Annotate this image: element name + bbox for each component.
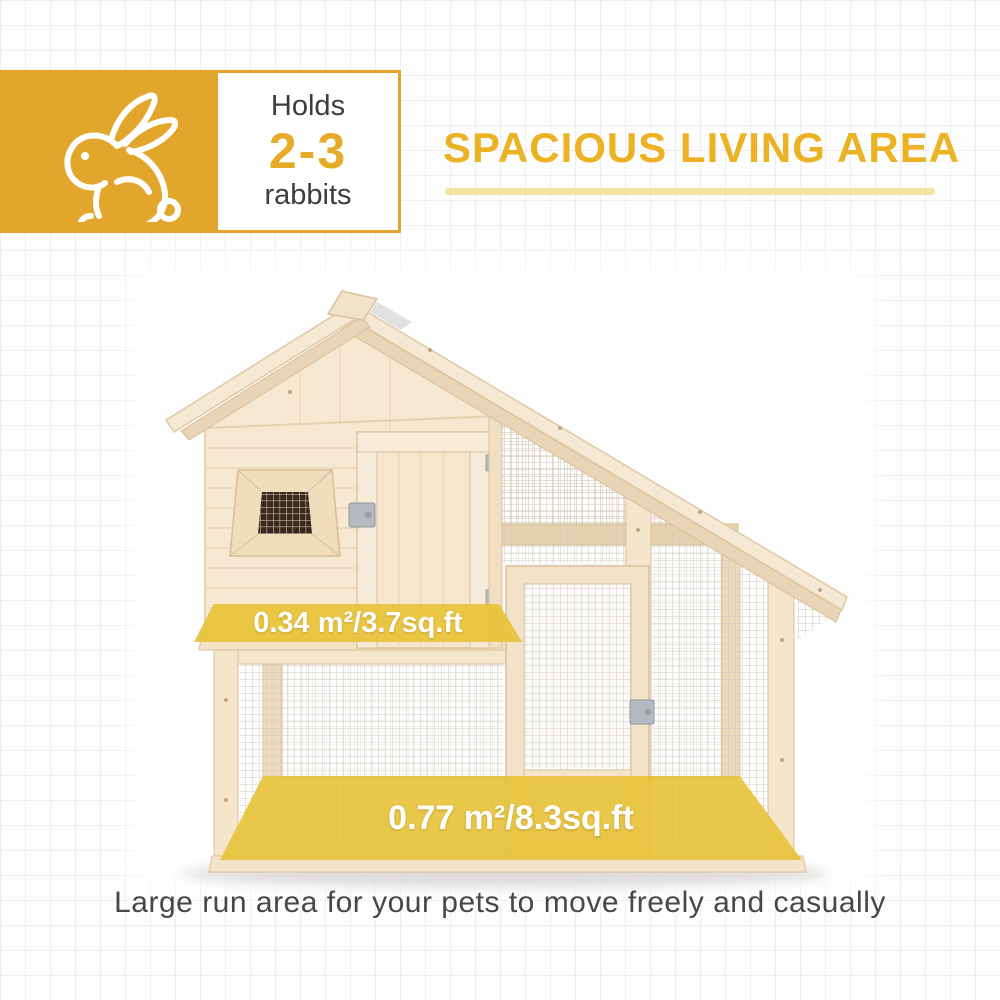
- product-infographic-page: Holds 2-3 rabbits SPACIOUS LIVING AREA 0…: [0, 0, 1000, 1000]
- page-title: SPACIOUS LIVING AREA: [443, 124, 960, 172]
- capacity-box: Holds 2-3 rabbits: [215, 70, 401, 233]
- upper-area-label: 0.34 m²/3.7sq.ft: [253, 607, 463, 640]
- lower-area-overlay: 0.77 m²/8.3sq.ft: [220, 776, 802, 860]
- upper-area-overlay: 0.34 m²/3.7sq.ft: [194, 604, 522, 642]
- house-door-latch: [349, 503, 375, 527]
- caption: Large run area for your pets to move fre…: [0, 886, 1000, 920]
- capacity-count: 2-3: [269, 123, 347, 181]
- house-window: [230, 470, 340, 556]
- capacity-badge: [0, 70, 215, 233]
- holds-label: Holds: [271, 91, 345, 123]
- title-underline: [445, 188, 935, 195]
- capacity-unit: rabbits: [264, 180, 351, 212]
- run-door-latch: [630, 700, 654, 724]
- rabbit-icon: [33, 82, 183, 222]
- lower-area-label: 0.77 m²/8.3sq.ft: [388, 799, 634, 838]
